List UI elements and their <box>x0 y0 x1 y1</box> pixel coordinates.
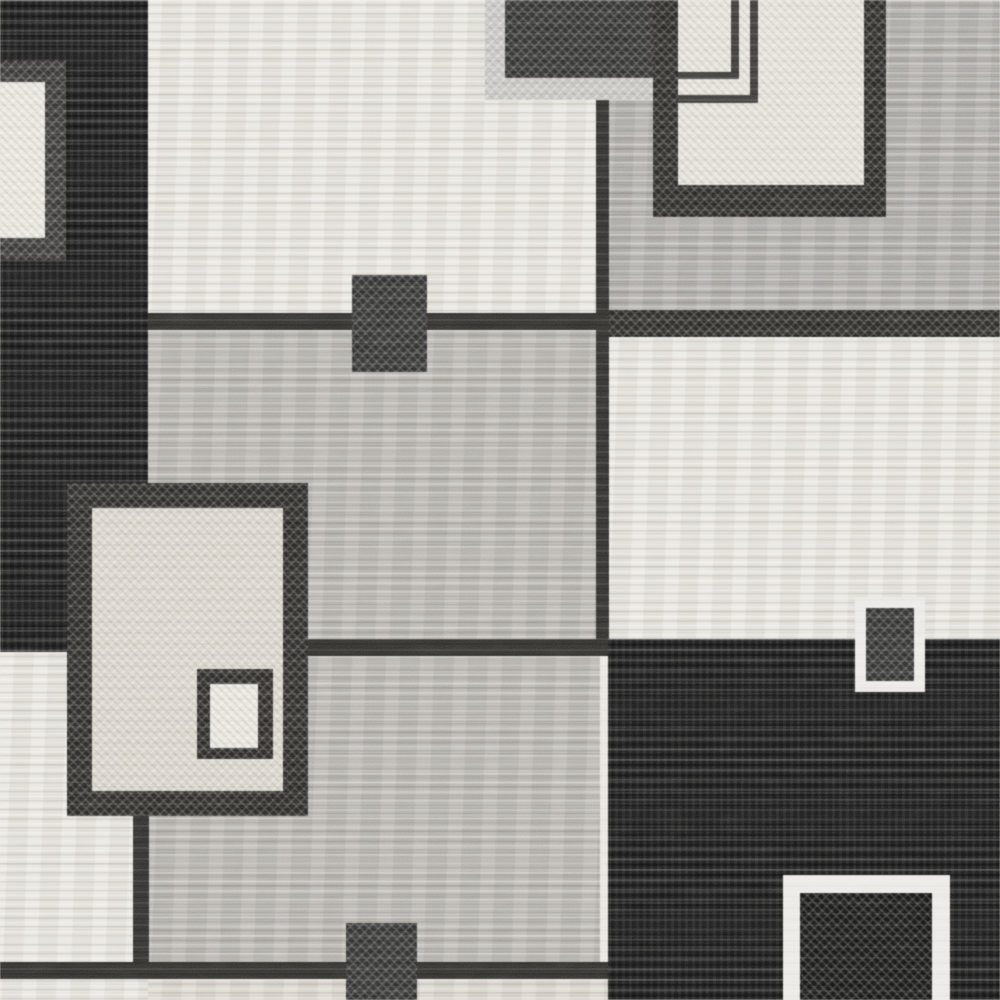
field-cream-right <box>605 337 1000 640</box>
rect-bottom-center-dark <box>346 923 417 1000</box>
line-bottom <box>0 962 608 979</box>
panel-outline-h1 <box>678 72 738 79</box>
rug-pattern-regions <box>0 0 1000 1000</box>
panel-outline-v2 <box>750 0 758 103</box>
line-vertical-center <box>596 98 609 639</box>
square-top-dark <box>505 0 653 78</box>
rug-photo <box>0 0 1000 1000</box>
line-vertical-left <box>133 816 149 964</box>
wframe-big-inner <box>800 893 932 1000</box>
divider-top-right <box>605 310 1000 337</box>
panel-top-right-inner <box>678 0 864 185</box>
square-top-left-inner <box>0 82 45 238</box>
bigrect-small-inner <box>210 684 258 748</box>
rect-center-dark <box>352 275 427 372</box>
panel-outline-v1 <box>731 0 739 79</box>
line-center-right <box>305 639 608 656</box>
wframe-small-inner <box>866 608 914 681</box>
panel-outline-h2 <box>678 95 758 103</box>
